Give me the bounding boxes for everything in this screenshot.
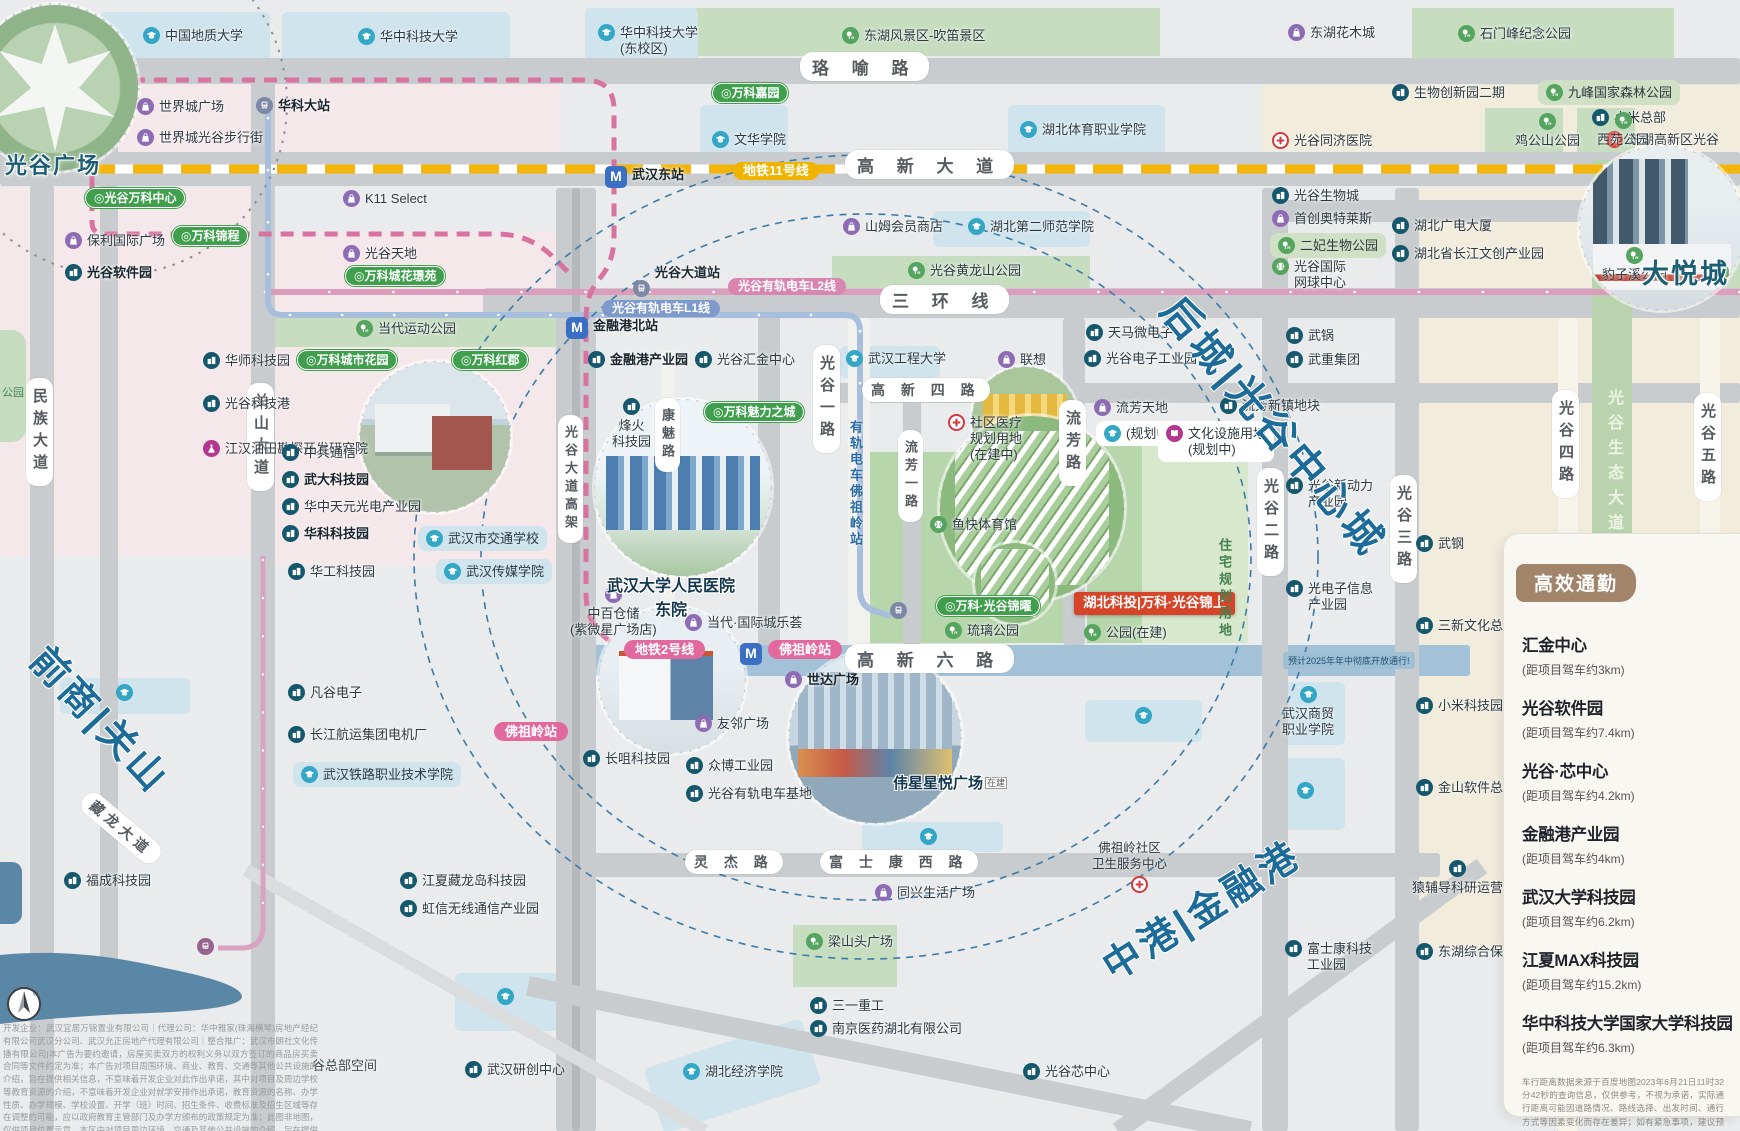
- poi-marker[interactable]: 社区医疗 规划用地 (在建中): [948, 414, 1022, 463]
- commute-item-name: 武汉大学科技园: [1522, 884, 1724, 908]
- road-label: 光谷四路: [1552, 390, 1579, 498]
- poi-marker[interactable]: 金融港产业园: [588, 351, 688, 368]
- commute-item: 武汉大学科技园(距项目驾车约6.2km): [1522, 884, 1724, 930]
- poi-label: 社区医疗 规划用地 (在建中): [970, 414, 1022, 463]
- poi-marker[interactable]: 湖北第二师范学院: [968, 218, 1094, 235]
- poi-label: 光谷国际 网球中心: [1294, 258, 1346, 291]
- poi-label: 光谷同济医院: [1294, 132, 1372, 149]
- park-icon: [1539, 113, 1556, 130]
- poi-marker[interactable]: 金山软件总部: [1416, 779, 1516, 796]
- commute-list: 汇金中心(距项目驾车约3km)光谷软件园(距项目驾车约7.4km)光谷·芯中心(…: [1522, 632, 1724, 1056]
- road-label: 光谷一路: [813, 345, 840, 453]
- park-icon: [1084, 624, 1101, 641]
- poi-label: 武汉商贸 职业学院: [1282, 705, 1334, 738]
- poi-marker[interactable]: 猿辅导科研运营: [1412, 860, 1503, 896]
- poi-marker[interactable]: 凡谷电子: [288, 684, 362, 701]
- poi-marker[interactable]: 华科科技园: [282, 525, 369, 542]
- poi-label: 华科大站: [278, 97, 330, 114]
- poi-marker[interactable]: 东湖风景区-吹笛景区: [842, 27, 985, 44]
- mall-icon: [343, 245, 360, 262]
- poi-label: 长江航运集团电机厂: [310, 726, 427, 743]
- poi-marker[interactable]: 小米科技园: [1416, 697, 1503, 714]
- school-icon: [444, 563, 461, 580]
- poi-label: 山姆会员商店: [865, 218, 943, 235]
- poi-marker[interactable]: [890, 602, 907, 619]
- biz-icon: [1449, 860, 1466, 877]
- poi-marker[interactable]: 光谷同济医院: [1272, 132, 1372, 149]
- poi-marker[interactable]: 西苑公园: [1597, 112, 1649, 148]
- poi-label: 二妃生物公园: [1300, 237, 1378, 254]
- compass-icon: ®: [6, 986, 42, 1022]
- disclaimer-text: 开发企业：武汉宜居万锦置业有限公司｜代理公司：华中雅家(珠海横琴)房地产经纪有限…: [3, 1022, 318, 1131]
- school-icon: [1104, 425, 1121, 442]
- school-icon: [968, 218, 985, 235]
- poi-marker[interactable]: [920, 828, 937, 845]
- biz-icon: [1272, 187, 1289, 204]
- poi-label: 南京医药湖北有限公司: [832, 1020, 962, 1037]
- project-badge[interactable]: ◎万科·光谷锦曜: [936, 596, 1040, 616]
- biz-icon: [1416, 535, 1433, 552]
- commute-item-name: 汇金中心: [1522, 632, 1724, 656]
- poi-label: 光谷有轨电车基地: [708, 785, 812, 802]
- commute-item: 江夏MAX科技园(距项目驾车约15.2km): [1522, 947, 1724, 993]
- biz-icon: [1286, 351, 1303, 368]
- place-label: 公园: [2, 384, 24, 400]
- poi-marker[interactable]: 世界城光谷步行街: [137, 129, 263, 146]
- poi-label: 同兴生活广场: [897, 884, 975, 901]
- poi-label: 华中科技大学 (东校区): [620, 24, 698, 57]
- poi-label: 友邻广场: [717, 715, 769, 732]
- poi-marker[interactable]: 鱼快体育馆: [930, 516, 1017, 533]
- poi-marker[interactable]: 同兴生活广场: [875, 884, 975, 901]
- mall-icon: [998, 351, 1015, 368]
- biz-icon: [282, 498, 299, 515]
- place-label: 光谷广场: [5, 148, 101, 180]
- poi-label: 福成科技园: [86, 872, 151, 889]
- poi-marker[interactable]: [1131, 876, 1148, 893]
- poi-marker[interactable]: 光谷天地: [343, 245, 417, 262]
- poi-label: 琉璃公园: [967, 622, 1019, 639]
- school-icon: [497, 988, 514, 1005]
- project-badge[interactable]: ◎万科城市花园: [297, 350, 397, 370]
- zone: [0, 862, 22, 924]
- poi-marker[interactable]: [633, 280, 650, 297]
- park-icon: [908, 262, 925, 279]
- poi-marker[interactable]: 光谷国际 网球中心: [1272, 258, 1346, 291]
- poi-marker[interactable]: 光谷黄龙山公园: [908, 262, 1021, 279]
- place-label: 光谷大道站: [655, 262, 720, 281]
- poi-label: 石门峰纪念公园: [1480, 25, 1571, 42]
- poi-marker[interactable]: 世达广场: [785, 671, 859, 688]
- poi-marker[interactable]: 三新文化总部: [1416, 617, 1516, 634]
- biz-icon: [623, 398, 640, 415]
- poi-label: 武重集团: [1308, 351, 1360, 368]
- biz-icon: [288, 684, 305, 701]
- poi-label: 江夏藏龙岛科技园: [422, 872, 526, 889]
- mall-icon: [785, 671, 802, 688]
- poi-marker[interactable]: 武锅: [1286, 327, 1334, 344]
- tram-icon: [633, 280, 650, 297]
- poi-marker[interactable]: 福成科技园: [64, 872, 151, 889]
- metro-icon: M: [605, 166, 627, 188]
- project-badge[interactable]: ◎万科锦程: [172, 226, 248, 246]
- biz-icon: [583, 750, 600, 767]
- commute-item: 汇金中心(距项目驾车约3km): [1522, 632, 1724, 678]
- poi-marker[interactable]: 光谷科技港: [203, 395, 290, 412]
- poi-label: 世达广场: [807, 671, 859, 688]
- poi-marker[interactable]: 武重集团: [1286, 351, 1360, 368]
- poi-marker[interactable]: 琉璃公园: [945, 622, 1019, 639]
- poi-marker[interactable]: 东湖花木城: [1288, 24, 1375, 41]
- biz-icon: [282, 444, 299, 461]
- place-label: 谷总部空间: [312, 1055, 377, 1074]
- commute-item-name: 华中科技大学国家大学科技园: [1522, 1010, 1724, 1034]
- poi-marker[interactable]: 武汉铁路职业技术学院: [293, 762, 461, 787]
- poi-marker[interactable]: M金融港北站: [566, 317, 658, 339]
- poi-marker[interactable]: 保利国际广场: [65, 232, 165, 249]
- poi-marker[interactable]: 世界城广场: [137, 98, 224, 115]
- poi-marker[interactable]: 友邻广场: [695, 715, 769, 732]
- poi-marker[interactable]: M武汉东站: [605, 166, 684, 188]
- poi-marker[interactable]: [197, 938, 214, 955]
- school-icon: [1135, 707, 1152, 724]
- mall-icon: [137, 129, 154, 146]
- poi-label: 武汉市交通学校: [448, 530, 539, 547]
- poi-marker[interactable]: 长江航运集团电机厂: [288, 726, 427, 743]
- poi-marker[interactable]: 流芳天地: [1094, 399, 1168, 416]
- commute-item-name: 光谷·芯中心: [1522, 758, 1724, 782]
- poi-marker[interactable]: 武汉研创中心: [465, 1061, 565, 1078]
- map-canvas: 珞 喻 路高 新 大 道三 环 线高 新 四 路高 新 六 路灵 杰 路富 士 …: [0, 0, 1740, 1131]
- poi-label: 光谷科技港: [225, 395, 290, 412]
- park-icon: [1615, 112, 1632, 129]
- poi-label: 光谷黄龙山公园: [930, 262, 1021, 279]
- road: [251, 62, 275, 1131]
- metro-icon: M: [566, 317, 588, 339]
- poi-marker[interactable]: 华中天元光电产业园: [282, 498, 421, 515]
- biz-icon: [1416, 697, 1433, 714]
- poi-label: 光谷芯中心: [1045, 1063, 1110, 1080]
- poi-marker[interactable]: 长咀科技园: [583, 750, 670, 767]
- road-label: 灵 杰 路: [685, 850, 783, 874]
- biz-icon: [1086, 324, 1103, 341]
- transit-badge[interactable]: 地铁11号线: [733, 162, 819, 180]
- poi-label: 东湖风景区-吹笛景区: [864, 27, 985, 44]
- commute-item: 华中科技大学国家大学科技园(距项目驾车约6.3km): [1522, 1010, 1724, 1056]
- commute-item-distance: (距项目驾车约6.2km): [1522, 913, 1724, 930]
- poi-marker[interactable]: 光谷芯中心: [1023, 1063, 1110, 1080]
- poi-marker[interactable]: 虹信无线通信产业园: [400, 900, 539, 917]
- poi-label: 光电子信息 产业园: [1308, 580, 1373, 613]
- road-label: 康魅路: [655, 398, 680, 472]
- poi-label: 光谷生物城: [1294, 187, 1359, 204]
- poi-marker[interactable]: 众博工业园: [686, 757, 773, 774]
- poi-label: 中国地质大学: [165, 27, 243, 44]
- poi-label: 湖北经济学院: [705, 1063, 783, 1080]
- poi-marker[interactable]: 山姆会员商店: [843, 218, 943, 235]
- poi-marker[interactable]: 湖北体育职业学院: [1020, 121, 1146, 138]
- poi-label: 联想: [1020, 351, 1046, 368]
- poi-marker[interactable]: 九峰国家森林公园: [1538, 80, 1680, 105]
- mall-icon: [1288, 24, 1305, 41]
- road-label: 高 新 六 路: [845, 644, 1014, 673]
- poi-marker[interactable]: 武汉工程大学: [846, 350, 946, 367]
- project-badge[interactable]: ◎万科魅力之城: [704, 402, 804, 422]
- poi-marker[interactable]: 光谷软件园: [65, 264, 152, 281]
- school-icon: [301, 766, 318, 783]
- park-icon: [945, 622, 962, 639]
- poi-label: 中兵通信: [304, 444, 356, 461]
- road-label: 藏龙大道: [77, 788, 166, 868]
- poi-label: 华工科技园: [310, 563, 375, 580]
- poi-marker[interactable]: 首创奥特莱斯: [1272, 210, 1372, 227]
- poi-marker[interactable]: 光谷汇金中心: [695, 351, 795, 368]
- poi-label: 梁山头广场: [828, 933, 893, 950]
- biz-icon: [400, 900, 417, 917]
- poi-marker[interactable]: 武汉商贸 职业学院: [1282, 686, 1334, 738]
- poi-marker[interactable]: 中国地质大学: [143, 27, 243, 44]
- poi-label: 首创奥特莱斯: [1294, 210, 1372, 227]
- biz-icon: [1286, 327, 1303, 344]
- poi-marker[interactable]: 联想: [998, 351, 1046, 368]
- poi-marker[interactable]: 富士康科技 工业园: [1285, 940, 1372, 973]
- project-badge[interactable]: ◎万科红郡: [452, 350, 528, 370]
- poi-label: 武汉东站: [632, 166, 684, 183]
- biz-icon: [1416, 943, 1433, 960]
- commute-item-name: 江夏MAX科技园: [1522, 947, 1724, 971]
- poi-label: 武汉研创中心: [487, 1061, 565, 1078]
- biz-icon: [282, 471, 299, 488]
- project-badge[interactable]: ◎光谷万科中心: [85, 188, 185, 208]
- poi-marker[interactable]: K11 Select: [343, 190, 427, 207]
- poi-label: 长咀科技园: [605, 750, 670, 767]
- hosp-icon: [1272, 132, 1289, 149]
- school-icon: [358, 28, 375, 45]
- place-label: 大悦城: [1642, 252, 1729, 291]
- poi-label: 世界城广场: [159, 98, 224, 115]
- poi-label: K11 Select: [365, 190, 427, 207]
- school-icon: [846, 350, 863, 367]
- road-label: 光谷二路: [1257, 468, 1284, 576]
- commute-item-name: 金融港产业园: [1522, 821, 1724, 845]
- biz-icon: [1392, 217, 1409, 234]
- poi-label: 武汉铁路职业技术学院: [323, 766, 453, 783]
- poi-label: 武钢: [1438, 535, 1464, 552]
- poi-marker[interactable]: 石门峰纪念公园: [1458, 25, 1571, 42]
- commute-item-distance: (距项目驾车约15.2km): [1522, 976, 1724, 993]
- commute-item: 光谷·芯中心(距项目驾车约4.2km): [1522, 758, 1724, 804]
- park-icon: [1278, 237, 1295, 254]
- mall-icon: [137, 98, 154, 115]
- poi-marker[interactable]: 烽火 科技园: [612, 398, 651, 450]
- poi-marker[interactable]: 华科大站: [256, 97, 330, 114]
- mall-icon: [843, 218, 860, 235]
- road: [100, 84, 118, 976]
- mall-icon: [1272, 210, 1289, 227]
- poi-marker[interactable]: 武汉传媒学院: [436, 559, 552, 584]
- poi-marker[interactable]: 湖北广电大厦: [1392, 217, 1492, 234]
- zone: [1283, 758, 1345, 830]
- transit-badge[interactable]: 光谷有轨电车L1线: [602, 300, 720, 317]
- biz-icon: [1416, 779, 1433, 796]
- tram-icon: [256, 97, 273, 114]
- biz-icon: [810, 1020, 827, 1037]
- biz-icon: [282, 525, 299, 542]
- poi-marker[interactable]: 二妃生物公园: [1270, 233, 1386, 258]
- flask-icon: [203, 440, 220, 457]
- biz-icon: [686, 757, 703, 774]
- poi-label: 保利国际广场: [87, 232, 165, 249]
- poi-label: 华中科技大学: [380, 28, 458, 45]
- project-badge[interactable]: 湖北科投|万科·光谷锦上: [1074, 592, 1235, 615]
- biz-icon: [203, 395, 220, 412]
- place-label: 伟星星悦广场在建: [893, 772, 1007, 793]
- commute-item-distance: (距项目驾车约6.3km): [1522, 1039, 1724, 1056]
- mall-icon: [65, 232, 82, 249]
- under-construction-tag: 在建: [985, 777, 1007, 789]
- commute-panel-title: 高效通勤: [1516, 564, 1636, 602]
- mall-icon: [1094, 399, 1111, 416]
- biz-icon: [65, 264, 82, 281]
- commute-item-distance: (距项目驾车约4.2km): [1522, 787, 1724, 804]
- poi-label: 东湖花木城: [1310, 24, 1375, 41]
- biz-icon: [1392, 84, 1409, 101]
- poi-marker[interactable]: 华中科技大学 (东校区): [598, 24, 698, 57]
- biz-icon: [400, 872, 417, 889]
- poi-marker[interactable]: 湖北省长江文创产业园: [1392, 245, 1544, 262]
- road-label: 光谷生态大道: [1598, 383, 1628, 545]
- poi-label: 西苑公园: [1597, 131, 1649, 148]
- road-label: 光谷五路: [1694, 393, 1721, 501]
- school-icon: [1020, 121, 1037, 138]
- poi-label: 凡谷电子: [310, 684, 362, 701]
- school-icon: [143, 27, 160, 44]
- poi-label: 世界城光谷步行街: [159, 129, 263, 146]
- school-icon: [920, 828, 937, 845]
- poi-marker[interactable]: 光电子信息 产业园: [1286, 580, 1373, 613]
- poi-label: 光谷汇金中心: [717, 351, 795, 368]
- transit-badge[interactable]: 佛祖岭站: [494, 722, 568, 741]
- poi-marker[interactable]: 公园(在建): [1084, 624, 1167, 641]
- commute-item: 金融港产业园(距项目驾车约4km): [1522, 821, 1724, 867]
- poi-marker[interactable]: [1135, 707, 1152, 724]
- road-label: 流芳路: [1059, 400, 1086, 486]
- poi-marker[interactable]: 华师科技园: [203, 352, 290, 369]
- road-label: 珞 喻 路: [800, 52, 929, 81]
- hosp-icon: [948, 414, 965, 431]
- biz-icon: [695, 351, 712, 368]
- poi-label: 武汉工程大学: [868, 350, 946, 367]
- poi-label: 小米科技园: [1438, 697, 1503, 714]
- biz-icon: [64, 872, 81, 889]
- commute-item-distance: (距项目驾车约3km): [1522, 661, 1724, 678]
- project-badge[interactable]: ◎万科嘉园: [712, 83, 788, 103]
- poi-marker[interactable]: 光谷生物城: [1272, 187, 1359, 204]
- poi-marker[interactable]: [1297, 782, 1314, 799]
- biz-icon: [588, 351, 605, 368]
- place-label: 武汉大学人民医院 东院: [607, 572, 735, 620]
- park-icon: [1626, 247, 1643, 264]
- project-badge[interactable]: ◎万科城花璟苑: [345, 266, 445, 286]
- school-icon: [683, 1063, 700, 1080]
- school-icon: [1297, 782, 1314, 799]
- commute-footnote: 车行距离数据来源于百度地图2023年6月21日11时32分42秒的查询信息，仅供…: [1522, 1076, 1724, 1131]
- poi-label: 湖北省长江文创产业园: [1414, 245, 1544, 262]
- mall-icon: [875, 884, 892, 901]
- poi-marker[interactable]: 文华学院: [712, 131, 786, 148]
- transit-badge[interactable]: 地铁2号线: [624, 640, 705, 659]
- poi-label: 三一重工: [832, 997, 884, 1014]
- poi-label: 公园(在建): [1106, 624, 1167, 641]
- poi-label: 生物创新园二期: [1414, 84, 1505, 101]
- poi-marker[interactable]: 南京医药湖北有限公司: [810, 1020, 962, 1037]
- biz-icon: [203, 352, 220, 369]
- tennis-icon: [1272, 258, 1289, 275]
- transit-badge[interactable]: 佛祖岭站: [768, 640, 842, 659]
- road-label: 高 新 四 路: [862, 378, 990, 402]
- commute-item-distance: (距项目驾车约7.4km): [1522, 724, 1724, 741]
- poi-marker[interactable]: 鸡公山公园: [1515, 113, 1580, 149]
- metro-icon: M: [740, 643, 762, 665]
- poi-marker[interactable]: 光谷有轨电车基地: [686, 785, 812, 802]
- poi-marker[interactable]: 武大科技园: [282, 471, 369, 488]
- poi-label: 富士康科技 工业园: [1307, 940, 1372, 973]
- biz-icon: [288, 726, 305, 743]
- poi-marker[interactable]: 武汉市交通学校: [418, 526, 547, 551]
- school-icon: [426, 530, 443, 547]
- park-icon: [842, 27, 859, 44]
- poi-marker[interactable]: 生物创新园二期: [1392, 84, 1505, 101]
- poi-label: 华中天元光电产业园: [304, 498, 421, 515]
- biz-icon: [686, 785, 703, 802]
- poi-label: 烽火 科技园: [612, 417, 651, 450]
- poi-marker[interactable]: 江夏藏龙岛科技园: [400, 872, 526, 889]
- poi-label: 光谷天地: [365, 245, 417, 262]
- park-icon: [806, 933, 823, 950]
- poi-marker[interactable]: 当代运动公园: [356, 320, 456, 337]
- poi-label: 金融港产业园: [610, 351, 688, 368]
- poi-label: 金融港北站: [593, 317, 658, 334]
- road-label: 富 士 康 西 路: [820, 850, 978, 874]
- poi-marker[interactable]: [497, 988, 514, 1005]
- poi-marker[interactable]: 华中科技大学: [358, 28, 458, 45]
- photo-bld: [360, 362, 510, 512]
- poi-marker[interactable]: M: [740, 643, 762, 665]
- poi-marker[interactable]: 三一重工: [810, 997, 884, 1014]
- place-label: 有轨电车佛祖岭站: [846, 420, 865, 548]
- poi-label: 流芳天地: [1116, 399, 1168, 416]
- commute-panel: 高效通勤 汇金中心(距项目驾车约3km)光谷软件园(距项目驾车约7.4km)光谷…: [1503, 533, 1740, 1117]
- poi-marker[interactable]: 中兵通信: [282, 444, 356, 461]
- poi-label: 当代运动公园: [378, 320, 456, 337]
- mall-icon: [695, 715, 712, 732]
- poi-label: 猿辅导科研运营: [1412, 879, 1503, 896]
- poi-marker[interactable]: 华工科技园: [288, 563, 375, 580]
- transit-badge[interactable]: 光谷有轨电车L2线: [728, 278, 846, 295]
- road-label: 高 新 大 道: [845, 150, 1014, 179]
- poi-marker[interactable]: 湖北经济学院: [683, 1063, 783, 1080]
- park-icon: [1546, 84, 1563, 101]
- poi-label: 光谷软件园: [87, 264, 152, 281]
- poi-marker[interactable]: 武钢: [1416, 535, 1464, 552]
- road-label: 流芳一路: [898, 430, 923, 522]
- biz-icon: [1023, 1063, 1040, 1080]
- book-icon: [1166, 425, 1183, 442]
- biz-icon: [810, 997, 827, 1014]
- svg-text:®: ®: [33, 990, 39, 998]
- biz-icon: [1392, 245, 1409, 262]
- poi-marker[interactable]: 梁山头广场: [806, 933, 893, 950]
